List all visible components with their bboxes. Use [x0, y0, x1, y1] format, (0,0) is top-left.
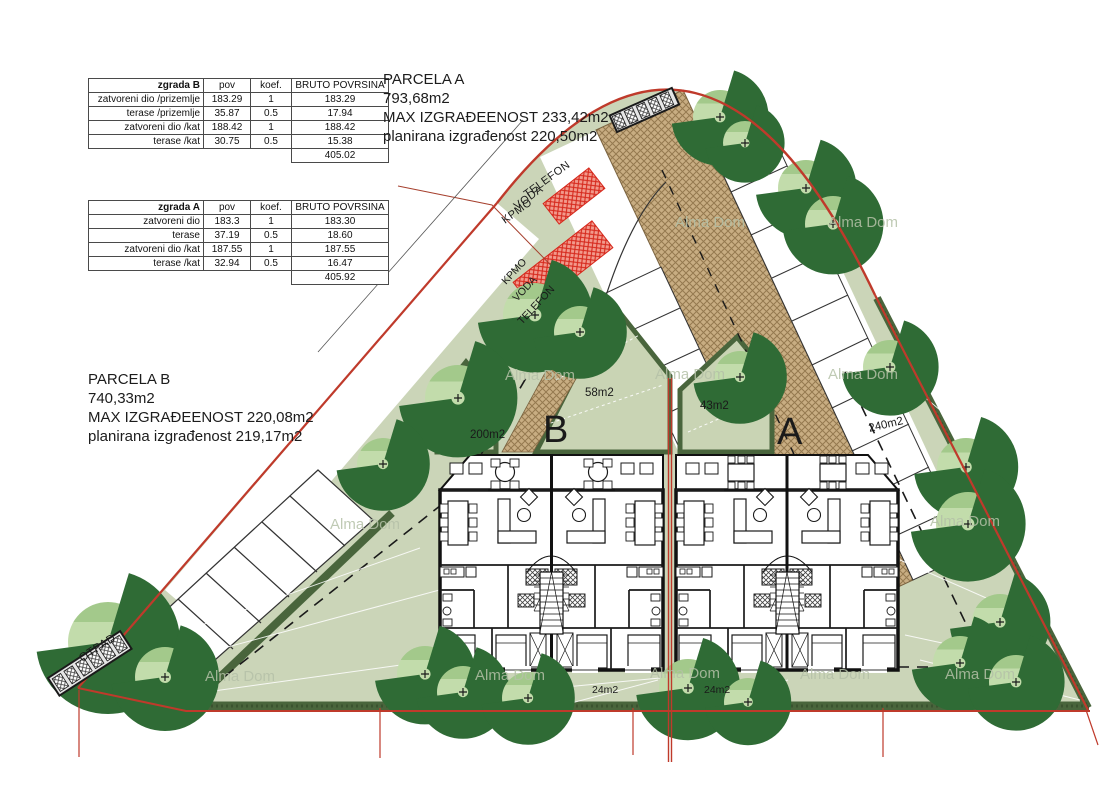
table-row: zatvoreni dio 183.3 1 183.30 [89, 215, 389, 229]
table-row: terase /prizemlje 35.87 0.5 17.94 [89, 107, 389, 121]
total-value: 405.92 [292, 271, 389, 285]
table-total-row: 405.92 [89, 271, 389, 285]
col-header-koef: koef. [251, 201, 292, 215]
table-row: terase 37.19 0.5 18.60 [89, 229, 389, 243]
parcela-b-area: 740,33m2 [88, 389, 314, 408]
row-koef: 1 [251, 215, 292, 229]
watermark: Alma Dom [800, 666, 870, 683]
table-a-title: zgrada A [89, 201, 204, 215]
row-label: terase /kat [89, 257, 204, 271]
watermark: Alma Dom [828, 366, 898, 383]
row-pov: 30.75 [204, 135, 251, 149]
table-row: zatvoreni dio /kat 188.42 1 188.42 [89, 121, 389, 135]
watermark: Alma Dom [205, 668, 275, 685]
watermark: Alma Dom [655, 366, 725, 383]
watermark: Alma Dom [330, 516, 400, 533]
row-label: zatvoreni dio /kat [89, 121, 204, 135]
watermark: Alma Dom [675, 214, 745, 231]
table-zgrada-a: zgrada A pov koef. BRUTO POVRSINA zatvor… [88, 200, 389, 285]
site-plan-page: { "tables": { "zgrada_b": { "title": "zg… [0, 0, 1116, 787]
row-pov: 187.55 [204, 243, 251, 257]
row-label: zatvoreni dio [89, 215, 204, 229]
watermark: Alma Dom [650, 665, 720, 682]
row-bruto: 188.42 [292, 121, 389, 135]
building-b-label: B [543, 409, 568, 451]
row-koef: 1 [251, 243, 292, 257]
row-label: terase /prizemlje [89, 107, 204, 121]
table-row: terase /kat 32.94 0.5 16.47 [89, 257, 389, 271]
col-header-pov: pov [204, 79, 251, 93]
watermark: Alma Dom [945, 666, 1015, 683]
parcela-a-max: MAX IZGRAĐEENOST 233,42m2 [383, 108, 609, 127]
parcela-a-info: PARCELA A 793,68m2 MAX IZGRAĐEENOST 233,… [383, 70, 609, 146]
left-garden-area-label: 200m2 [470, 429, 505, 441]
row-bruto: 18.60 [292, 229, 389, 243]
row-pov: 188.42 [204, 121, 251, 135]
row-koef: 0.5 [251, 107, 292, 121]
parcela-b-max: MAX IZGRAĐEENOST 220,08m2 [88, 408, 314, 427]
row-label: zatvoreni dio /prizemlje [89, 93, 204, 107]
row-koef: 0.5 [251, 135, 292, 149]
table-row: terase /kat 30.75 0.5 15.38 [89, 135, 389, 149]
row-bruto: 187.55 [292, 243, 389, 257]
row-bruto: 183.30 [292, 215, 389, 229]
building-a-label: A [777, 411, 803, 453]
row-pov: 35.87 [204, 107, 251, 121]
row-pov: 183.3 [204, 215, 251, 229]
total-value: 405.02 [292, 149, 389, 163]
row-koef: 1 [251, 121, 292, 135]
back-garden-a-label: 24m2 [704, 684, 730, 696]
parcela-b-info: PARCELA B 740,33m2 MAX IZGRAĐEENOST 220,… [88, 370, 314, 446]
garden-b-area-label: 58m2 [585, 387, 614, 399]
back-garden-b-label: 24m2 [592, 684, 618, 696]
row-bruto: 15.38 [292, 135, 389, 149]
parcela-b-title: PARCELA B [88, 370, 314, 389]
row-pov: 37.19 [204, 229, 251, 243]
garden-a-area-label: 43m2 [700, 400, 729, 412]
watermark: Alma Dom [475, 667, 545, 684]
watermark: Alma Dom [828, 214, 898, 231]
row-label: terase /kat [89, 135, 204, 149]
table-zgrada-b: zgrada B pov koef. BRUTO POVRSINA zatvor… [88, 78, 389, 163]
table-row: zatvoreni dio /prizemlje 183.29 1 183.29 [89, 93, 389, 107]
row-label: zatvoreni dio /kat [89, 243, 204, 257]
row-bruto: 17.94 [292, 107, 389, 121]
row-koef: 1 [251, 93, 292, 107]
watermark: Alma Dom [505, 367, 575, 384]
col-header-bruto: BRUTO POVRSINA [292, 201, 389, 215]
table-row: zatvoreni dio /kat 187.55 1 187.55 [89, 243, 389, 257]
parcela-a-planned: planirana izgrađenost 220,50m2 [383, 127, 609, 146]
table-b-title: zgrada B [89, 79, 204, 93]
row-pov: 32.94 [204, 257, 251, 271]
parcela-b-planned: planirana izgrađenost 219,17m2 [88, 427, 314, 446]
building-a [676, 455, 898, 673]
parcela-a-title: PARCELA A [383, 70, 609, 89]
row-label: terase [89, 229, 204, 243]
row-bruto: 16.47 [292, 257, 389, 271]
col-header-bruto: BRUTO POVRSINA [292, 79, 389, 93]
col-header-pov: pov [204, 201, 251, 215]
building-b [440, 455, 663, 673]
table-total-row: 405.02 [89, 149, 389, 163]
watermark: Alma Dom [930, 513, 1000, 530]
parcela-a-area: 793,68m2 [383, 89, 609, 108]
row-koef: 0.5 [251, 257, 292, 271]
row-koef: 0.5 [251, 229, 292, 243]
row-bruto: 183.29 [292, 93, 389, 107]
col-header-koef: koef. [251, 79, 292, 93]
row-pov: 183.29 [204, 93, 251, 107]
